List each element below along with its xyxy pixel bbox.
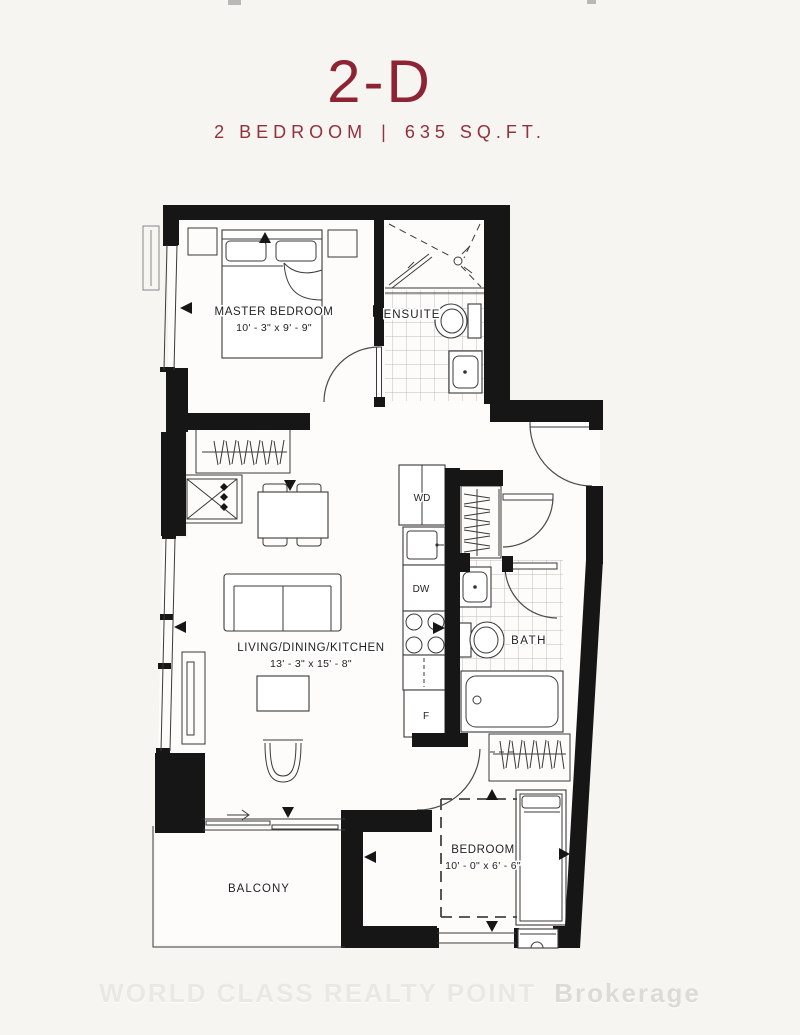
ensuite-sink xyxy=(449,351,482,393)
label-bedroom: BEDROOM xyxy=(451,844,515,856)
dims-master-bedroom: 10' - 3" x 9' - 9" xyxy=(236,322,312,334)
adjacent-structure xyxy=(143,226,159,290)
label-living-dining-kitchen: LIVING/DINING/KITCHEN xyxy=(237,642,384,654)
label-fridge: F xyxy=(423,711,429,722)
hvac-vent-unit xyxy=(518,929,558,948)
kitchen-sink xyxy=(403,527,445,565)
coffee-table xyxy=(257,676,309,711)
scan-artifacts xyxy=(228,0,596,5)
cooktop xyxy=(403,611,445,655)
floor-plan-svg: MASTER BEDROOM 10' - 3" x 9' - 9" ENSUIT… xyxy=(0,0,800,1035)
bath-sink xyxy=(459,567,491,607)
label-master-bedroom: MASTER BEDROOM xyxy=(215,306,334,318)
dims-bedroom: 10' - 0" x 6' - 6" xyxy=(445,860,521,872)
dining-table xyxy=(258,484,328,546)
master-bed xyxy=(222,230,322,358)
bedroom-bed xyxy=(516,790,566,925)
floorplan-page: 2-D 2 BEDROOM|635 SQ.FT. xyxy=(0,0,800,1035)
dims-living-dining-kitchen: 13' - 3" x 15' - 8" xyxy=(270,658,352,670)
label-balcony: BALCONY xyxy=(228,883,290,895)
kitchen-counter xyxy=(403,655,445,690)
watermark-suffix: Brokerage xyxy=(554,978,701,1008)
label-ensuite: ENSUITE xyxy=(384,309,441,321)
brokerage-watermark: WORLD CLASS REALTY POINTBrokerage xyxy=(0,978,800,1009)
label-dishwasher: DW xyxy=(413,584,430,595)
sofa xyxy=(224,574,341,631)
label-bath: BATH xyxy=(511,635,547,647)
watermark-brand: WORLD CLASS REALTY POINT xyxy=(99,978,536,1008)
ensuite-toilet xyxy=(435,304,481,338)
bath-toilet xyxy=(459,622,504,658)
label-washer-dryer: WD xyxy=(414,493,431,504)
bathtub xyxy=(461,671,563,732)
master-bedroom-door xyxy=(377,347,382,402)
hall-door xyxy=(503,494,553,500)
